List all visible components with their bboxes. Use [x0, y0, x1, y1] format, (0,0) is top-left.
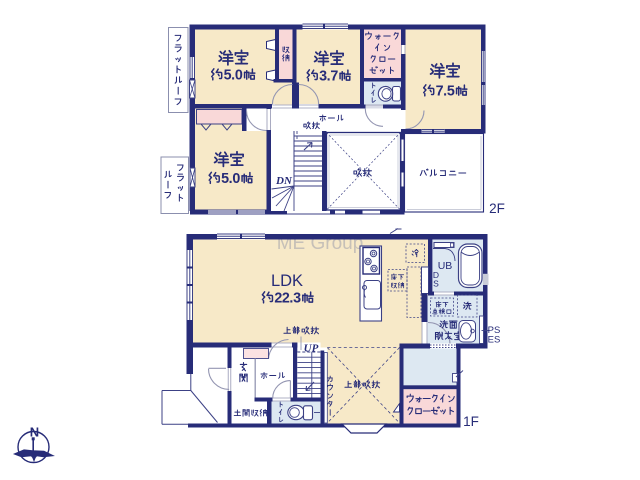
- svg-text:2F: 2F: [489, 201, 505, 216]
- svg-text:UP: UP: [304, 343, 319, 355]
- svg-text:3: 3: [293, 290, 301, 306]
- svg-text:UB: UB: [438, 260, 453, 272]
- svg-text:N: N: [30, 425, 39, 440]
- svg-text:5: 5: [447, 83, 455, 99]
- svg-text:0: 0: [232, 171, 240, 187]
- svg-text:1F: 1F: [463, 414, 479, 429]
- svg-text:DN: DN: [275, 175, 293, 187]
- svg-text:S: S: [433, 279, 439, 289]
- svg-text:7: 7: [330, 68, 338, 84]
- svg-text:0: 0: [235, 67, 243, 83]
- svg-text:ES: ES: [488, 335, 501, 346]
- svg-text:LDK: LDK: [271, 272, 303, 290]
